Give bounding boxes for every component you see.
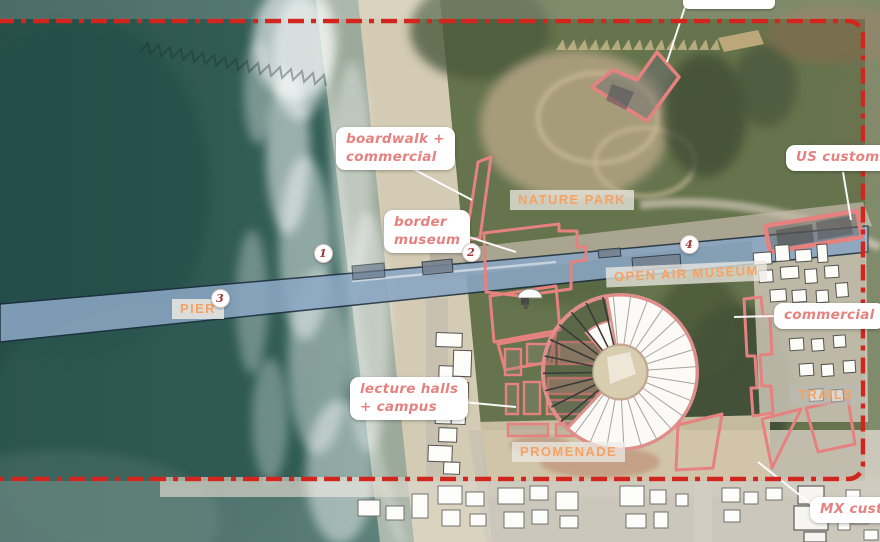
callout-boardwalk-commercial: boardwalk + commercial [336,127,455,170]
marker-3: 3 [211,289,230,308]
cropped-callout-box [683,0,775,9]
marker-1: 1 [314,244,333,263]
callout-line: commercial [784,307,875,325]
zone-label-nature-park: NATURE PARK [510,190,634,210]
callout-us-customs: US customs [786,145,880,171]
zone-label-promenade: PROMENADE [512,442,625,462]
callout-line: commercial [346,149,445,167]
callout-line: US customs [796,149,880,167]
marker-2: 2 [462,243,481,262]
site-plan-canvas: boardwalk + commercial border museum US … [0,0,880,542]
callout-line: boardwalk + [346,131,445,149]
callout-line: MX customs [820,501,880,519]
callout-lecture-halls-campus: lecture halls + campus [350,377,468,420]
callout-line: border [394,214,460,232]
bullring [543,295,697,449]
callout-line: + campus [360,399,458,417]
zone-label-trails: TRAILS [790,385,861,405]
callout-line: lecture halls [360,381,458,399]
callout-border-museum: border museum [384,210,470,253]
marker-4: 4 [680,235,699,254]
callout-mx-customs: MX customs [810,497,880,523]
callout-line: museum [394,232,460,250]
callout-commercial: commercial [774,303,880,329]
